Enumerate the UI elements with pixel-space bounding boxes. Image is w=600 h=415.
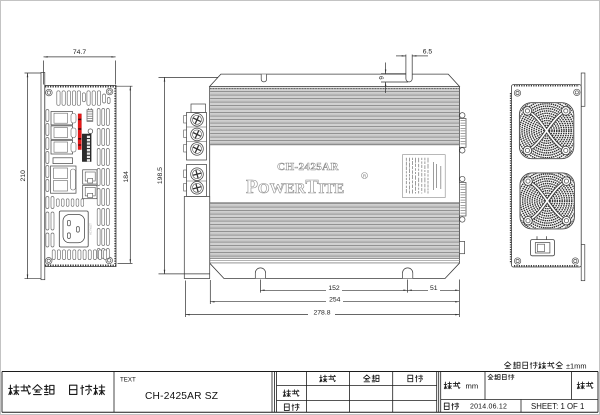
svg-text:278.8: 278.8: [313, 309, 330, 316]
svg-text:±1mm: ±1mm: [566, 361, 586, 370]
svg-text:2014.06.12: 2014.06.12: [470, 404, 507, 411]
svg-text:TEXT: TEXT: [120, 377, 136, 384]
svg-text:51: 51: [430, 285, 438, 292]
svg-text:210: 210: [20, 170, 27, 182]
svg-text:CH-2425AR: CH-2425AR: [277, 161, 339, 173]
svg-text:152: 152: [328, 285, 340, 292]
svg-text:9: 9: [378, 76, 385, 80]
svg-text:mm: mm: [466, 382, 479, 391]
svg-text:AC INLET: AC INLET: [89, 223, 93, 235]
svg-text:POWERTITE: POWERTITE: [246, 177, 344, 198]
svg-text:SHEET: 1 OF 1: SHEET: 1 OF 1: [531, 402, 584, 411]
svg-text:254: 254: [329, 296, 341, 303]
svg-text:184: 184: [123, 171, 130, 183]
svg-text:198.5: 198.5: [157, 167, 164, 184]
svg-text:6.5: 6.5: [423, 49, 433, 56]
svg-text:CH-2425AR SZ: CH-2425AR SZ: [145, 391, 218, 402]
svg-text:74.7: 74.7: [73, 49, 86, 56]
